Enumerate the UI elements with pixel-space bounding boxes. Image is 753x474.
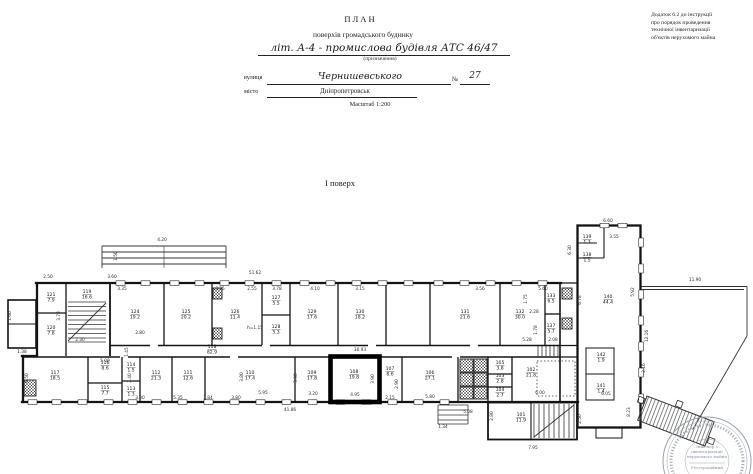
dimension-label: 41.86 [284,407,297,413]
dimension-label: 3.80 [239,372,245,382]
stair-corridor-right [538,346,558,356]
room-area: 82.9 [207,350,217,356]
stamp-line: Реєстраційний [691,465,723,470]
dimension-label: 3.25 [215,286,225,292]
document-page: Додаток 6.2 до інструкції про порядок пр… [0,0,753,474]
dimension-label: 3.84 [203,395,213,401]
dimension-label: 5.95 [258,390,268,396]
dimension-labels: 4.201.502.503.6051.623.353.252.553.784.1… [7,218,701,451]
dimension-label: 5.60 [538,286,548,292]
dimension-label: 3.55 [609,234,619,240]
dimension-label: 8.23 [626,407,632,417]
room-area: 17.4 [245,376,255,382]
dimension-label: 6.60 [603,218,613,224]
room-area: 18.2 [355,315,365,321]
room-area: 7.9 [47,298,54,304]
room-area: 17.6 [307,315,317,321]
dimension-label: 4.10 [310,286,320,292]
dimension-label: 2.08 [548,337,558,343]
room-area: 44.4 [603,300,613,306]
floor-plan-svg: Інженер зінвентаризаціїнерухомого майнаР… [0,0,753,474]
dimension-label: h=1.15 [247,325,263,331]
dimension-label: 2.50 [577,414,583,424]
dimension-label: 2.30 [75,337,85,343]
room-area: 8.6 [386,372,393,378]
dimension-label: 3.15 [355,286,365,292]
room-number: 139 [583,234,592,240]
dimension-label: 3.60 [107,274,117,280]
dimension-label: 1.38 [17,349,27,355]
room-area: 6.5 [547,299,554,305]
room-number: 103 [496,373,505,379]
dimension-label: 3.56 [475,286,485,292]
corridor-walls [22,283,577,402]
dimension-label: 4.95 [350,392,360,398]
room-number: 111 [184,370,193,376]
room-number: 126 [231,309,240,315]
room-number: 124 [131,309,140,315]
room-area: 17.8 [307,376,317,382]
room-area: 18.5 [50,376,60,382]
room-area: 30.0 [515,315,525,321]
room-number: 106 [426,370,435,376]
room-number: 138 [583,252,592,258]
dimension-label: 2.15 [385,395,395,401]
room-number: 101 [517,412,526,418]
room-area: 2.8 [496,379,503,385]
dimension-label: 6.05 [601,391,611,397]
dimension-label: 51.62 [249,270,262,276]
room-area: 19.2 [130,315,140,321]
room-number: 125 [182,309,191,315]
room-number: 117 [51,370,60,376]
room-number: 105 [496,360,505,366]
dimension-label: 2.28 [529,309,539,315]
room-area: 19.8 [349,375,359,381]
dimension-label: 7.95 [528,445,538,451]
room-area: 8.6 [101,366,108,372]
stair-left-wing [68,302,106,342]
dimension-label: 2.55 [247,286,257,292]
room-area: 3.8 [496,366,503,372]
dimension-label: 6.30 [567,245,573,255]
dimension-label: 3.90 [293,373,299,383]
partitions [8,226,622,439]
room-area: 12.6 [183,376,193,382]
room-number: 115 [101,385,110,391]
room-number: 112 [152,370,161,376]
stamp-line: нерухомого майна [687,454,728,459]
room-number: 131 [461,309,470,315]
dimension-label: 11.90 [689,277,702,283]
dimension-label: 30.93 [354,347,367,353]
dimension-label: 2.90 [394,379,400,389]
room-area: 27.1 [425,376,435,382]
room-number: 130 [356,309,365,315]
dimension-label: 3.78 [56,311,62,321]
room-number: 119 [83,289,92,295]
room-area: 16.6 [82,295,92,301]
room-area: 21.8 [526,373,536,379]
room-number: 129 [308,309,317,315]
dimension-label: 6.78 [577,295,583,305]
dimension-label: 5.35 [173,395,183,401]
room-area: 21.3 [151,376,161,382]
room-number: 141 [597,383,606,389]
room-area: 7.8 [47,331,54,337]
dimension-label: 12.16 [644,330,650,343]
dimension-label: 1.78 [533,325,539,335]
dimension-label: 2.50 [43,274,53,280]
room-area: 20.2 [181,315,191,321]
room-number: 127 [272,295,281,301]
room-area: 1.3 [127,392,134,398]
room-number: 114 [127,362,136,368]
dimension-label: 1.50 [113,251,119,261]
room-area: 5.5 [272,301,279,307]
entrance-porch-steps [102,246,226,268]
dimension-label: 5.28 [522,337,532,343]
dimension-label: 2.40 [127,373,133,383]
room-number: 132 [516,309,525,315]
room-area: 1.5 [583,258,590,264]
room-area: 5.7 [547,329,554,335]
room-area: 1.3 [583,240,590,246]
room-area: 21.6 [460,315,470,321]
dimension-label: 4.20 [157,237,167,243]
room-number: 121 [47,292,56,298]
dimension-label: 1.60 [7,311,13,321]
dimension-label: 5.08 [463,409,473,415]
room-area: 11.4 [230,315,240,321]
dimension-label: 3.20 [308,391,318,397]
room-number: 113 [127,386,136,392]
dimension-label: 6.50 [24,373,30,383]
dimension-label: 3.90 [370,374,376,384]
dimension-label: 5.00 [100,358,110,364]
room-number: 128 [272,324,281,330]
room-area: 1.9 [597,358,604,364]
dimension-label: 5.80 [425,394,435,400]
dimension-label: 3.80 [231,395,241,401]
dimension-label: 3.35 [117,286,127,292]
room-number: 140 [604,294,613,300]
room-number: 120 [47,325,56,331]
dimension-label: 6.00 [535,390,545,396]
stair-bottom-block [534,404,574,438]
room-number: 142 [597,352,606,358]
room-number: 102 [527,367,536,373]
room-area: 11.9 [516,418,526,424]
dimension-label: 1.34 [438,424,448,430]
dimension-label: 5.92 [630,287,636,297]
dimension-label: 2.80 [489,411,495,421]
dimension-label: 3.78 [272,286,282,292]
dimension-label: 1.75 [523,294,529,304]
room-number: 104 [496,387,505,393]
room-area: 1.5 [127,368,134,374]
room-number: 110 [246,370,255,376]
room-number: 137 [547,323,556,329]
room-area: 7.7 [101,391,108,397]
dimension-label: 2.80 [135,330,145,336]
room-number: 108 [350,369,359,375]
room-number: 107 [386,366,395,372]
stamp-text: Інженер зінвентаризаціїнерухомого майнаР… [687,444,728,470]
room-area: 5.3 [272,330,279,336]
room-number: 109 [308,370,317,376]
dimension-label: 2.16 [641,363,647,373]
room-area: 2.7 [496,393,503,399]
room-number: 118 [208,344,217,350]
room-number: 133 [547,293,556,299]
dimension-label: 1.45 [124,347,130,357]
dimension-label: 3.00 [135,395,145,401]
